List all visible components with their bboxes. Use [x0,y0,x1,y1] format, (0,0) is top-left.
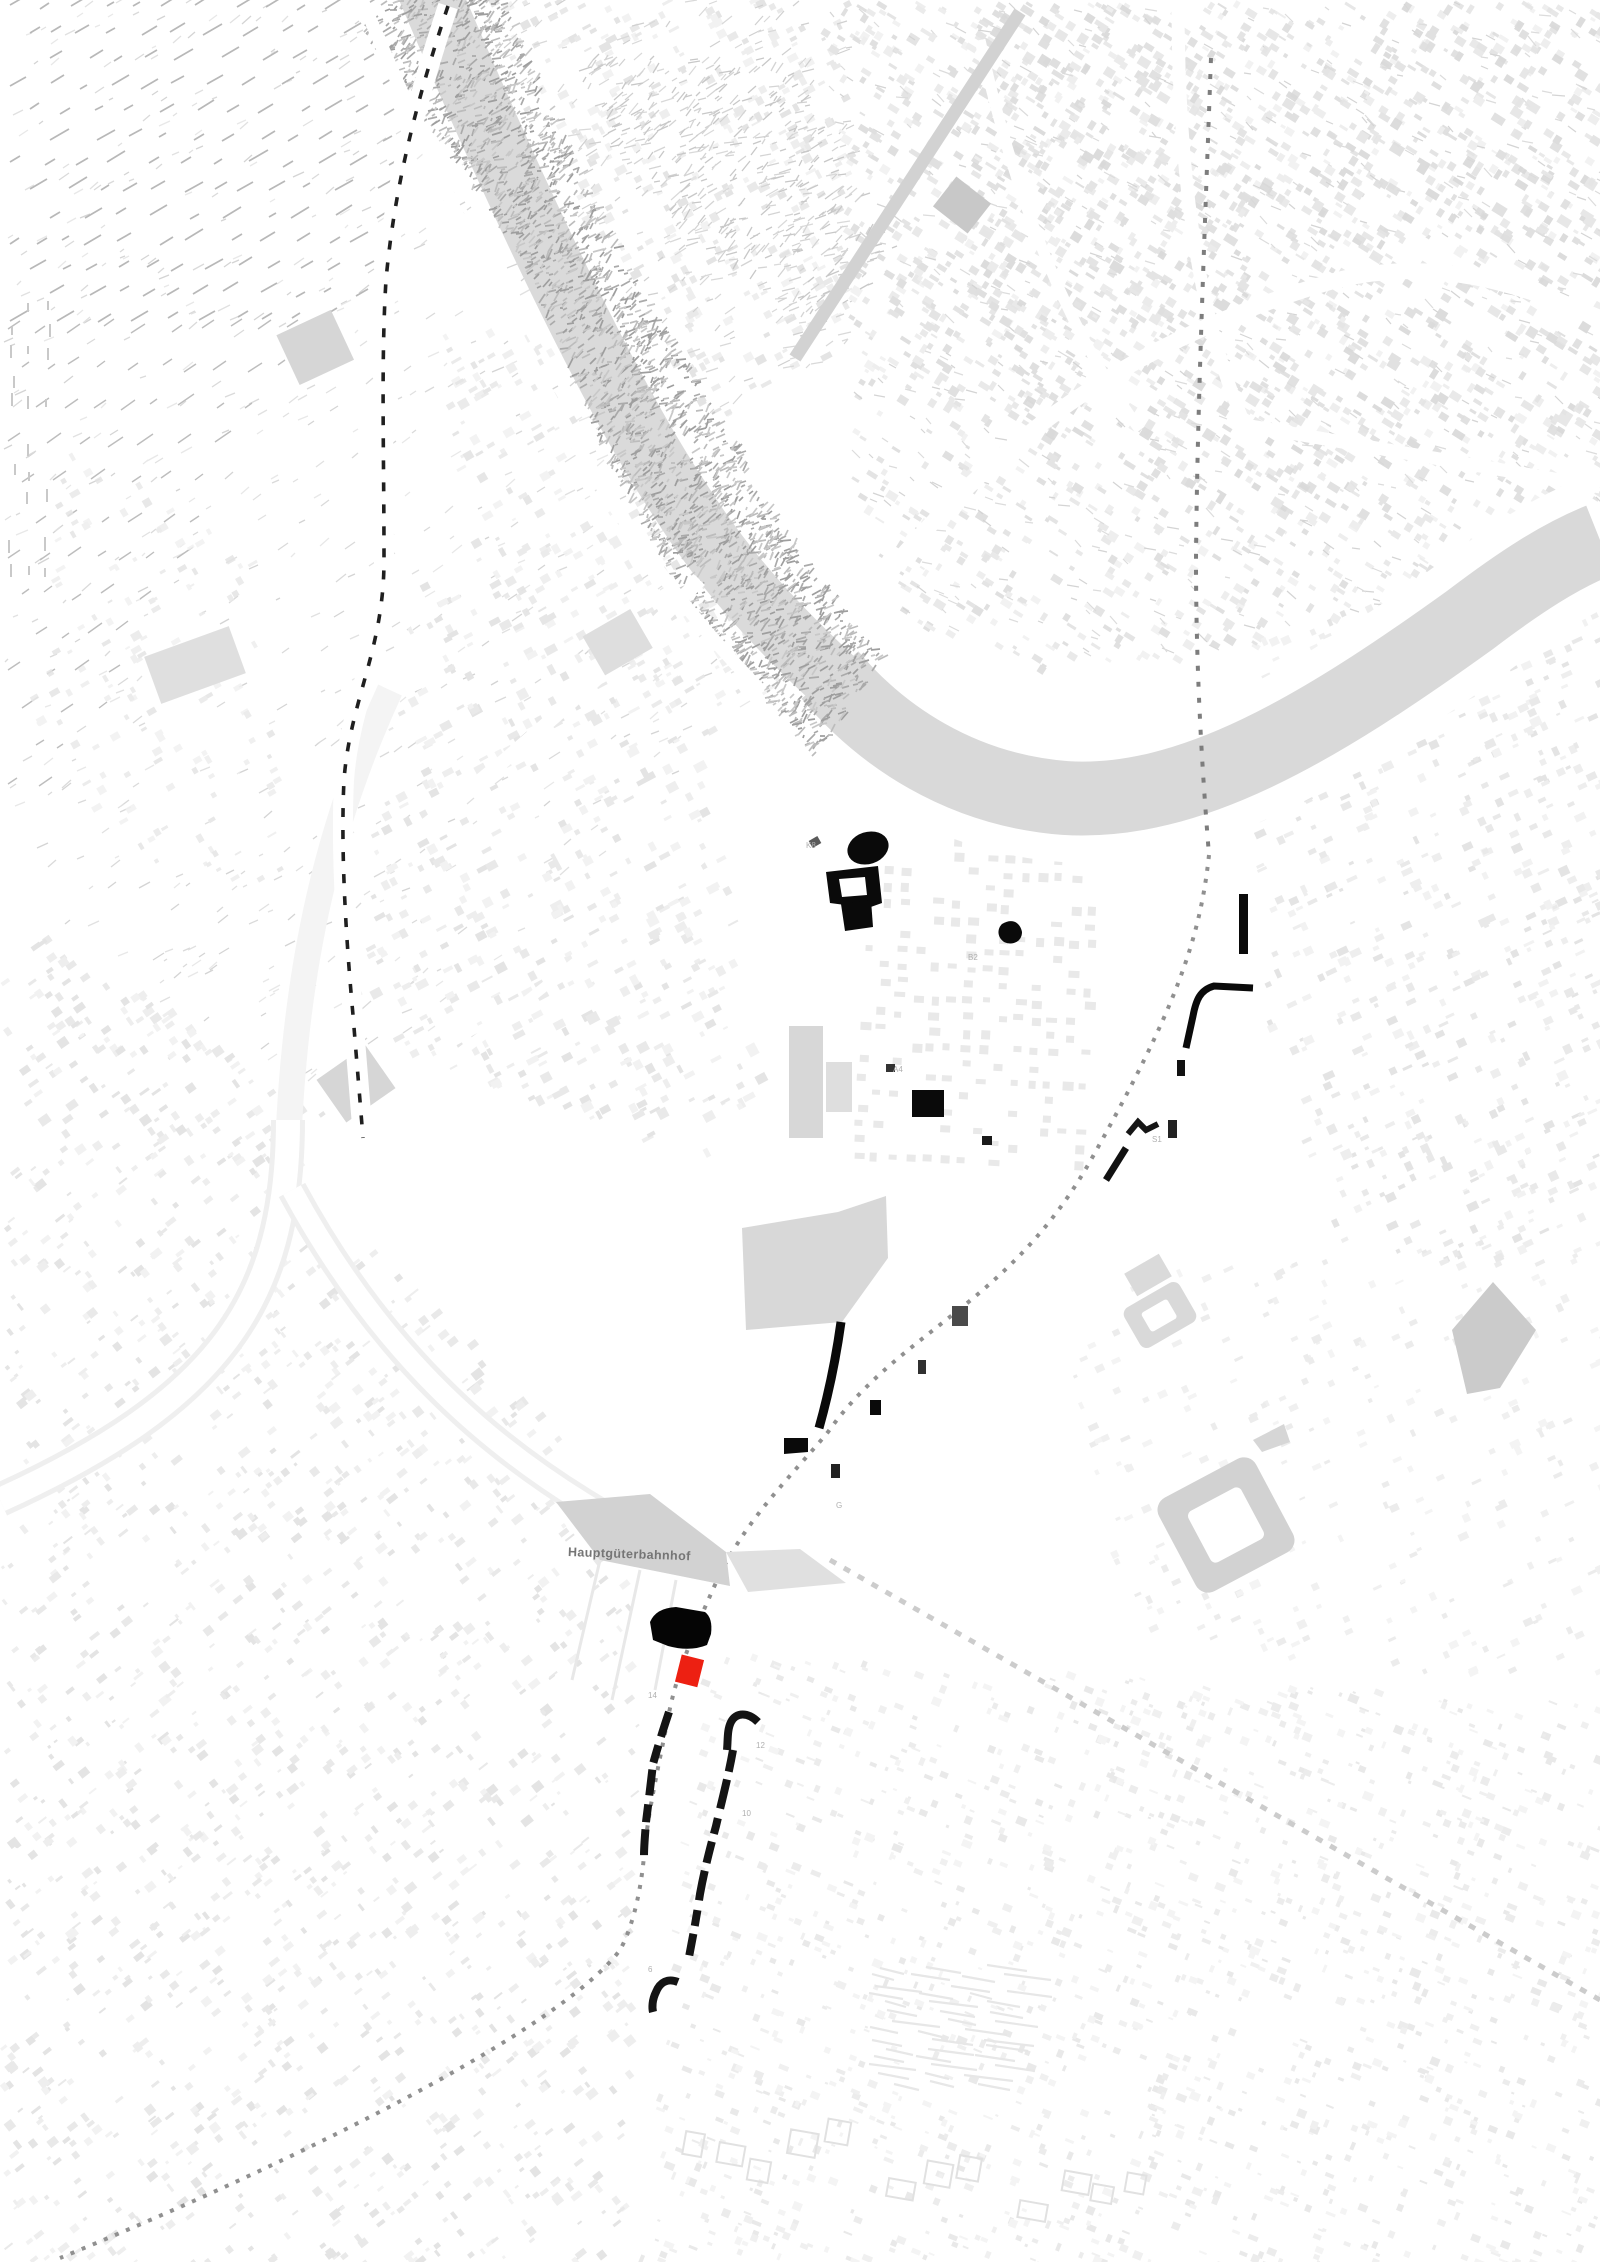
svg-text:G: G [836,1501,842,1510]
svg-text:14: 14 [648,1691,657,1700]
svg-text:A4: A4 [893,1065,903,1074]
svg-text:12: 12 [756,1741,765,1750]
svg-text:10: 10 [742,1809,751,1818]
svg-text:K8: K8 [806,841,816,850]
svg-text:S1: S1 [1152,1135,1162,1144]
svg-text:B2: B2 [968,953,978,962]
svg-text:6: 6 [648,1965,653,1974]
